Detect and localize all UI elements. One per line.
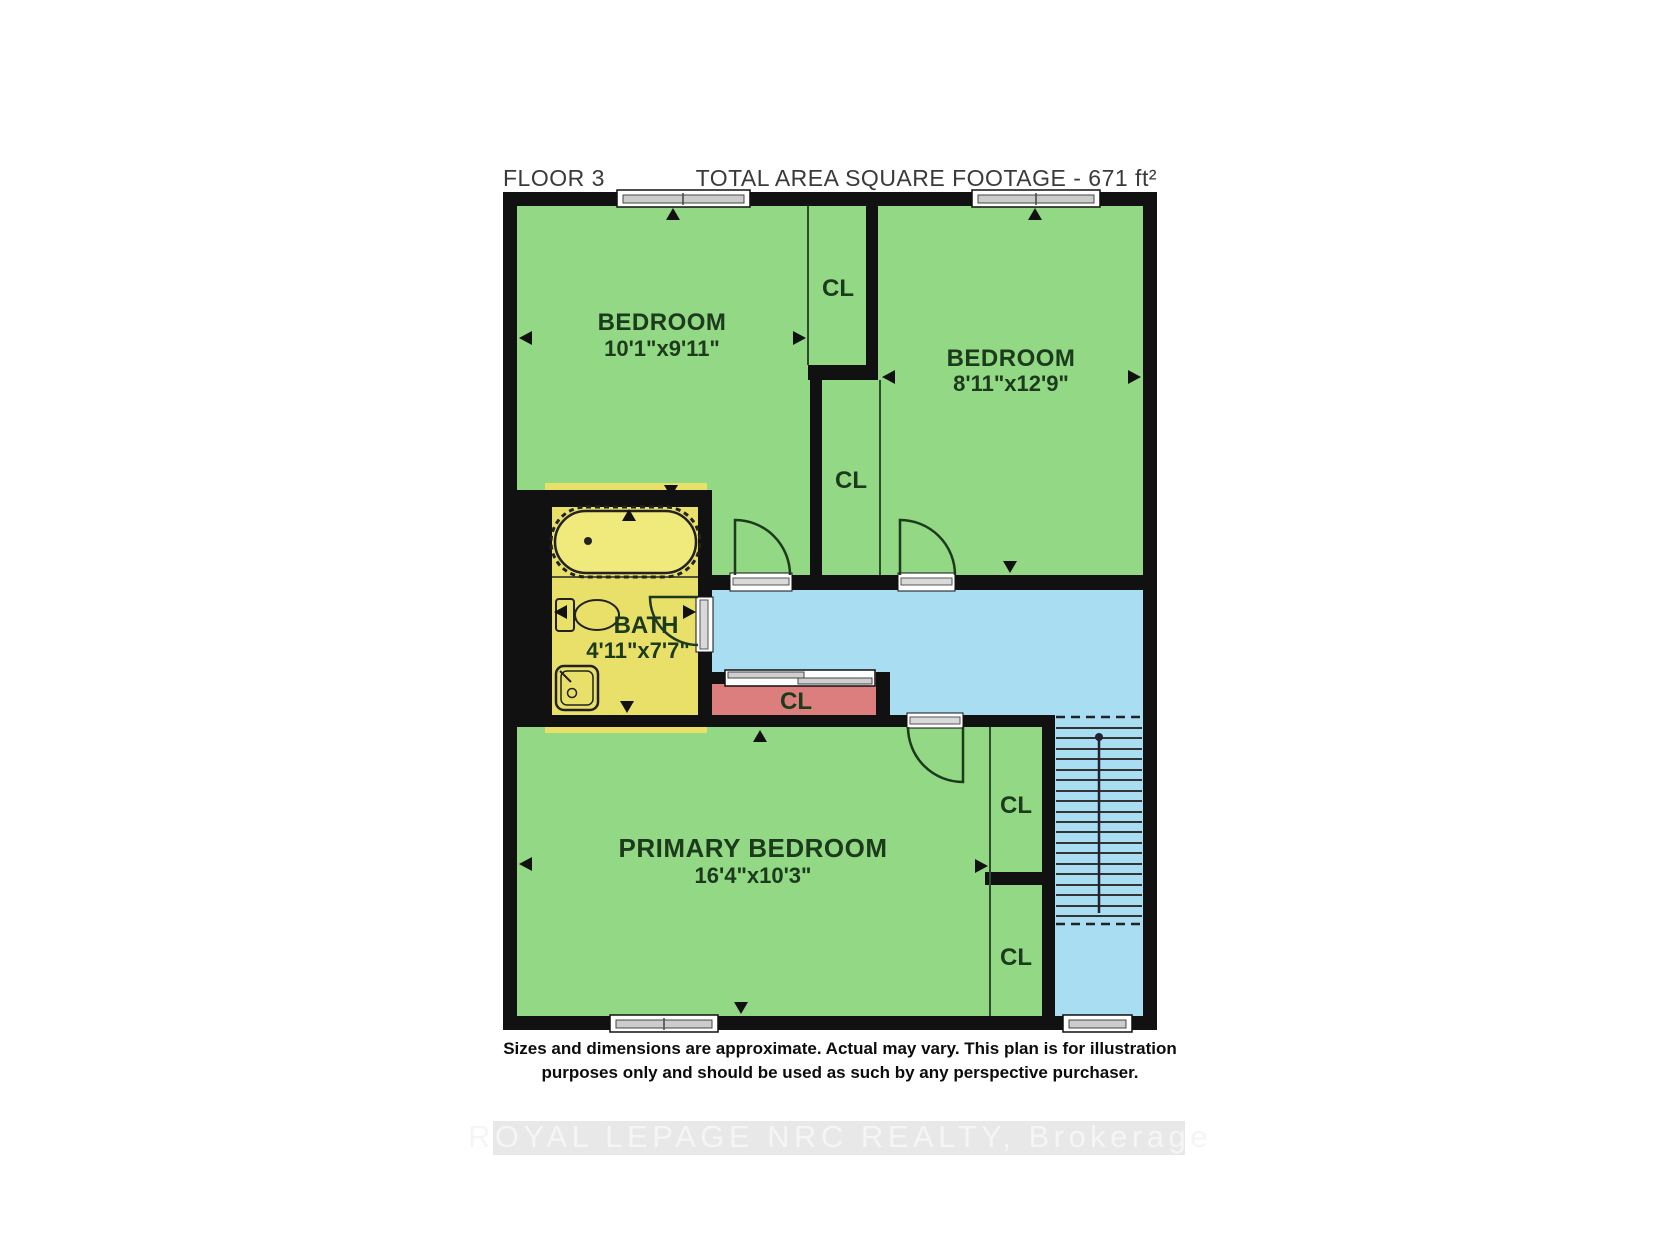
sink (556, 666, 598, 710)
bedroom2-door-opening (898, 573, 955, 591)
primary-bedroom-dimensions: 16'4"x10'3" (695, 863, 812, 888)
stairwell-floor-area (1042, 715, 1143, 1016)
bedroom2-dimensions: 8'11"x12'9" (953, 371, 1069, 396)
disclaimer-line2: purposes only and should be used as such… (541, 1063, 1138, 1082)
bath-door-opening (696, 597, 713, 652)
primary-door-opening (907, 713, 963, 728)
wall-red-closet-left-stub (712, 672, 725, 684)
closet-label-red: CL (780, 688, 812, 715)
floor-plan: FLOOR 3 TOTAL AREA SQUARE FOOTAGE - 671 … (0, 0, 1680, 1238)
wall-closet-jog (808, 365, 878, 380)
bedroom2-label: BEDROOM (947, 345, 1076, 372)
primary-bedroom-label: PRIMARY BEDROOM (619, 833, 888, 863)
window-bottom-primary (610, 1015, 718, 1032)
closet-label-primary-lower: CL (1000, 944, 1032, 971)
closet-label-primary-upper: CL (1000, 792, 1032, 819)
total-area-title: TOTAL AREA SQUARE FOOTAGE - 671 ft² (696, 165, 1157, 191)
bathtub-drain (584, 537, 592, 545)
bedroom1-door-opening (730, 573, 792, 591)
bath-dimensions: 4'11"x7'7" (586, 638, 690, 663)
disclaimer: Sizes and dimensions are approximate. Ac… (503, 1039, 1177, 1082)
closet-label-bedroom2: CL (835, 467, 867, 494)
disclaimer-line1: Sizes and dimensions are approximate. Ac… (503, 1039, 1177, 1058)
watermark-text: ROYAL LEPAGE NRC REALTY, Brokerage (468, 1119, 1212, 1154)
floor-title: FLOOR 3 (503, 165, 605, 191)
bath-label: BATH (614, 612, 679, 639)
bedroom1-dimensions: 10'1"x9'11" (604, 336, 720, 361)
wall-stairs-left (1042, 715, 1055, 1016)
window-bottom-stairwell (1063, 1015, 1132, 1032)
watermark: ROYAL LEPAGE NRC REALTY, Brokerage (468, 1119, 1212, 1155)
wall-bath-top (503, 490, 712, 507)
window-top-left (617, 190, 750, 207)
wall-between-bedrooms-lower (810, 378, 822, 590)
wall-between-bedrooms-upper (866, 199, 878, 367)
bedroom1-label: BEDROOM (598, 309, 727, 336)
stair-direction-dot (1095, 733, 1103, 741)
wall-primary-top (503, 715, 1055, 727)
closet-label-bedroom1: CL (822, 275, 854, 302)
window-top-right (972, 190, 1100, 207)
red-closet-sliding-door (725, 670, 875, 686)
wall-closet-divider (985, 872, 1055, 885)
